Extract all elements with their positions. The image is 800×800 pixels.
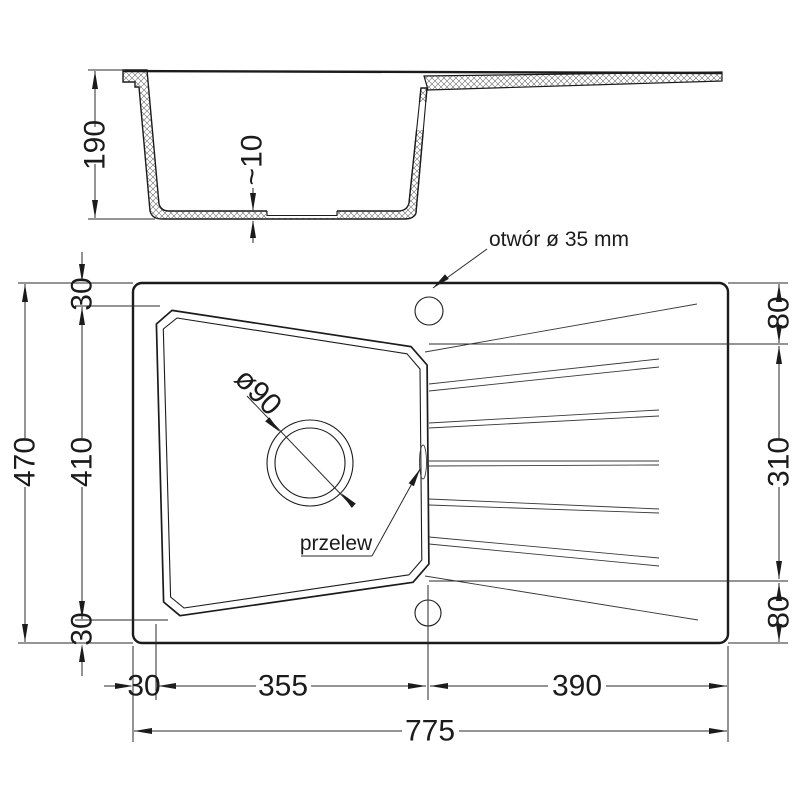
dim-right-margin-top-label: 80 [763,296,796,329]
overflow-label: przelew [300,532,373,555]
dim-bottom-bowl-label: 355 [258,670,308,703]
dim-left-total-470: 470 [9,284,42,642]
dim-left-margin-top-label: 30 [66,277,99,310]
faucet-hole-top [415,297,443,325]
dim-right-margin-bottom-80: 80 [763,583,796,642]
dim-right-drainer-310: 310 [763,346,796,579]
dim-bottom-bowl-355: 355 [158,670,426,703]
faucet-hole-leader: otwór ø 35 mm [433,228,629,288]
dim-recess-label: ~10 [236,135,269,186]
dim-right-drainer-label: 310 [763,437,796,487]
dim-left-total-label: 470 [9,437,42,487]
faucet-hole-label: otwór ø 35 mm [489,228,629,251]
dim-bottom-margin-left-label: 30 [127,670,160,703]
section-body [123,70,427,219]
dim-left-bowl-label: 410 [66,437,99,487]
dim-depth-190: 190 [79,71,112,218]
sink-technical-drawing: 190 ~10 [0,0,800,800]
section-view: 190 ~10 [79,70,723,243]
drainer-fold-bottom [425,576,698,620]
sink-outline [133,283,728,643]
dim-left-margin-top-30: 30 [66,252,99,311]
dim-bottom-total-label: 775 [405,715,455,748]
bowl-inner-outline [163,318,422,608]
dim-left-margin-bottom-30: 30 [66,612,99,676]
dim-bottom-total-775: 775 [134,715,727,748]
plan-view: ø90 przelew otwór ø 35 mm [9,228,796,748]
drainer-grooves [429,359,659,566]
technical-drawing-page: 190 ~10 [0,0,800,800]
dim-recess-10: ~10 [236,135,269,243]
dim-bottom-drainer-label: 390 [552,670,602,703]
dim-right-margin-top-80: 80 [763,284,796,343]
bowl-outer-outline [156,310,429,615]
dim-left-margin-bottom-label: 30 [66,612,99,645]
drainer-fold-top [425,304,697,352]
dim-depth-label: 190 [79,120,112,170]
dim-left-bowl-410: 410 [66,307,99,619]
drain-recess [267,209,337,218]
dim-bottom-drainer-390: 390 [430,670,727,703]
dim-right-margin-bottom-label: 80 [763,595,796,628]
overflow-leader: przelew [300,469,420,556]
drainer-slab [424,72,722,90]
drain-diameter-label: ø90 [228,362,288,422]
